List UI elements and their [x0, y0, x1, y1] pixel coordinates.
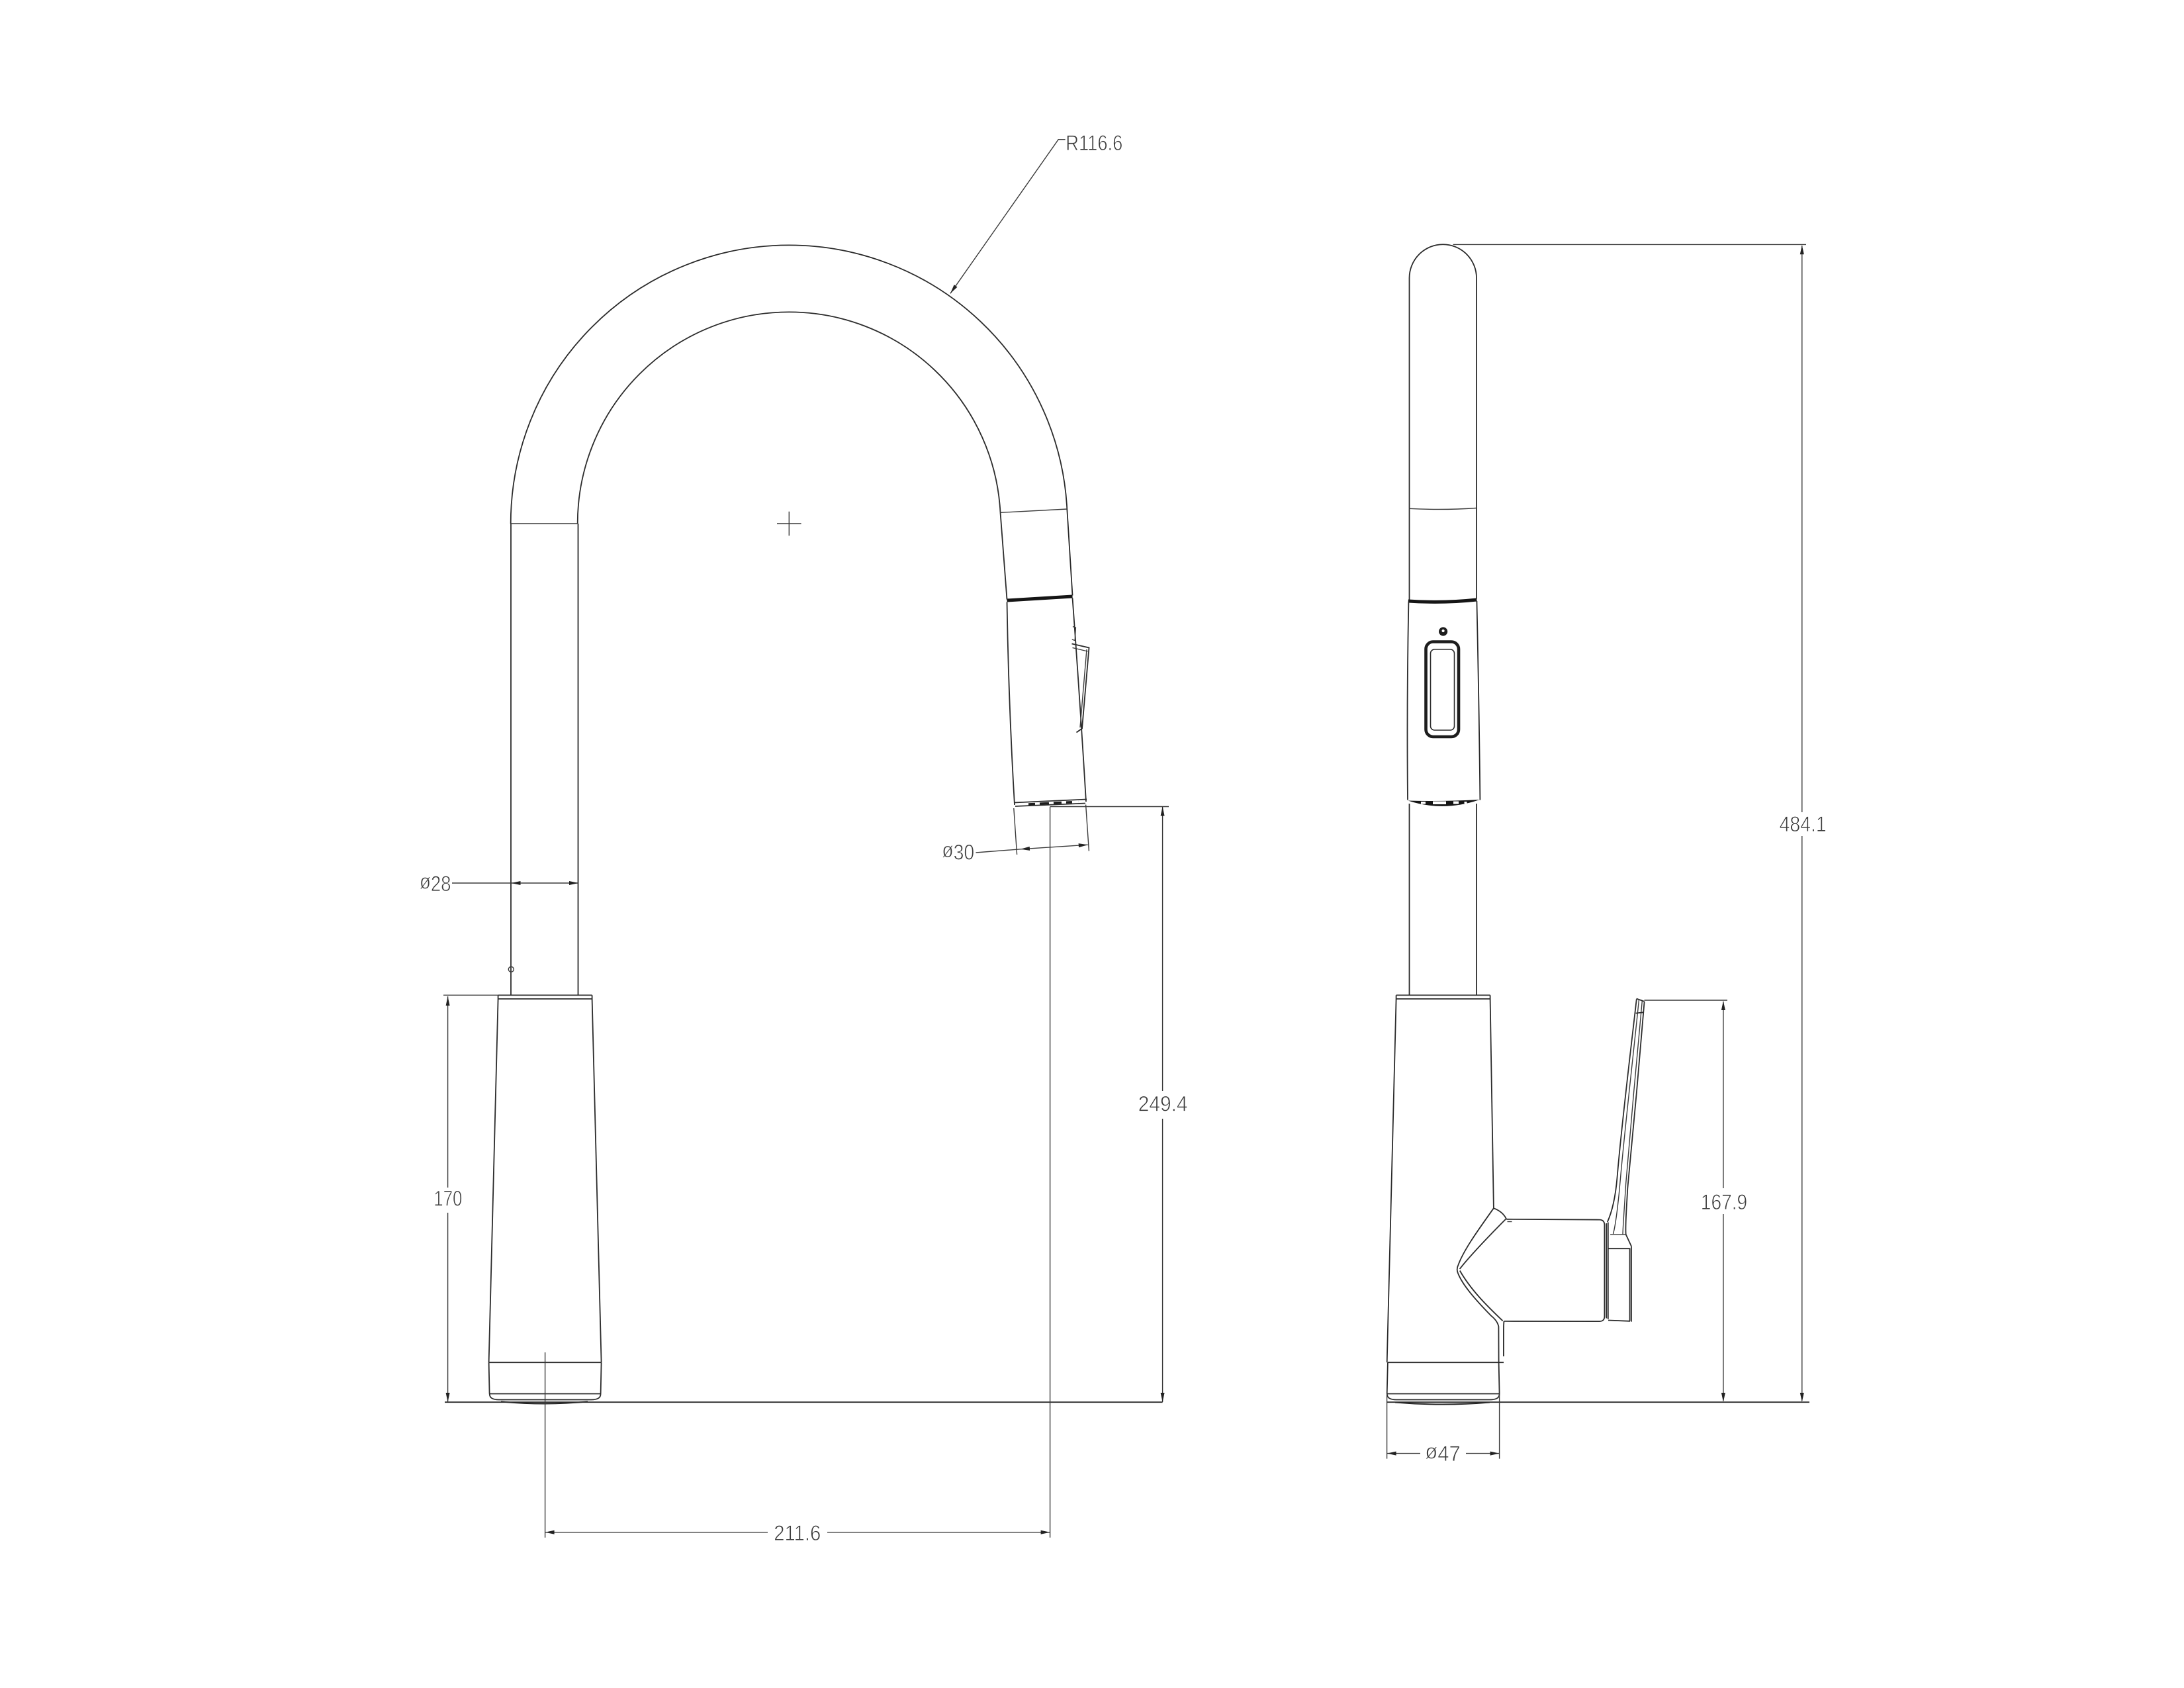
- svg-text:ø47: ø47: [1425, 1440, 1461, 1466]
- svg-text:ø30: ø30: [942, 838, 974, 865]
- svg-text:211.6: 211.6: [774, 1521, 821, 1545]
- svg-text:R116.6: R116.6: [1066, 131, 1122, 155]
- svg-text:170: 170: [433, 1186, 462, 1210]
- svg-text:ø28: ø28: [420, 870, 451, 896]
- svg-text:167.9: 167.9: [1701, 1190, 1747, 1214]
- svg-text:484.1: 484.1: [1780, 812, 1827, 836]
- svg-text:249.4: 249.4: [1138, 1092, 1188, 1116]
